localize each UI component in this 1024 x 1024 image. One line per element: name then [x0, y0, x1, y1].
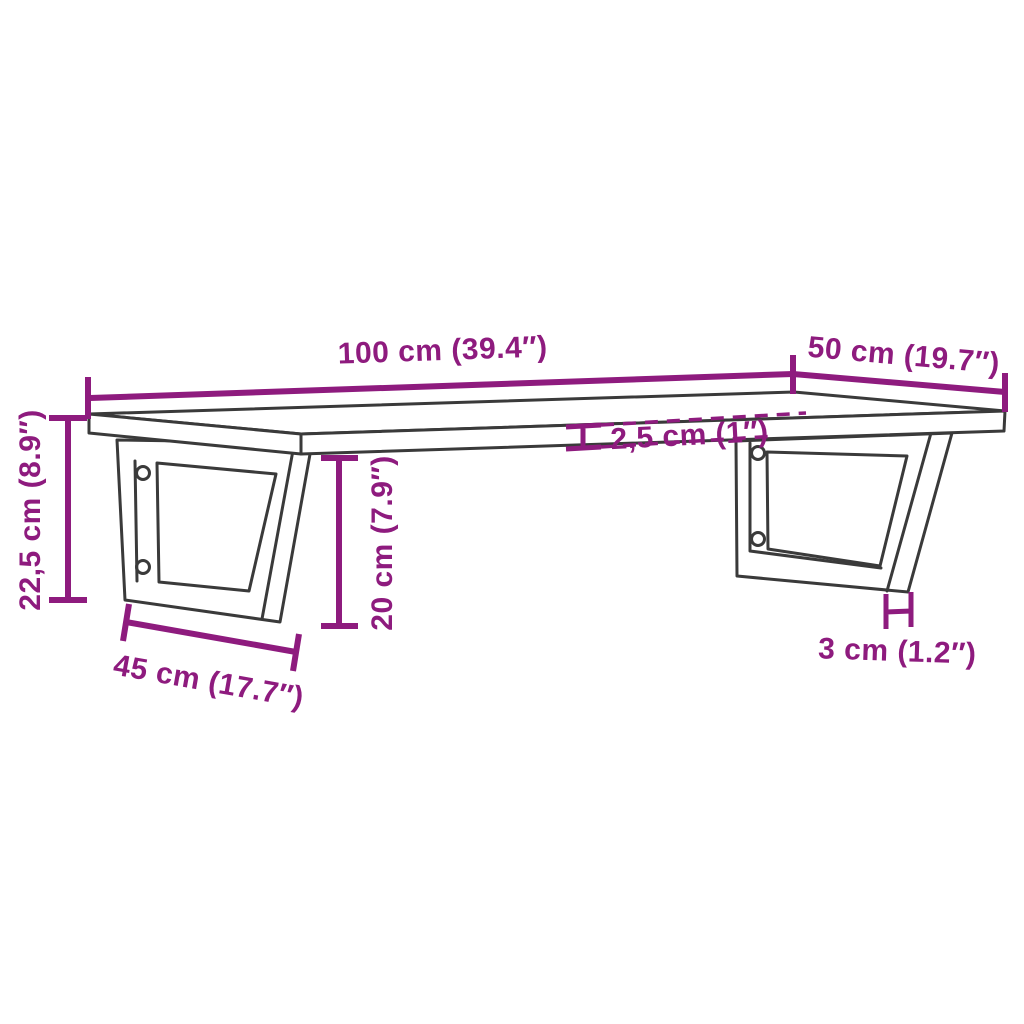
label-shelf-length: 100 cm (39.4″) [337, 330, 548, 370]
label-foot-width: 3 cm (1.2″) [818, 632, 977, 671]
dim-bracket-depth-cap-left [123, 604, 129, 641]
label-shelf-depth: 50 cm (19.7″) [806, 331, 1001, 381]
right-bracket [736, 433, 952, 592]
product-dimension-diagram: 100 cm (39.4″) 50 cm (19.7″) 2,5 cm (1″)… [0, 0, 1024, 1024]
label-bracket-depth: 45 cm (17.7″) [111, 649, 306, 715]
label-bracket-height: 20 cm (7.9″) [366, 455, 399, 630]
dim-bracket-depth-cap-right [293, 634, 299, 671]
left-bracket [117, 440, 312, 622]
dim-foot-width-symbol [886, 592, 911, 629]
shelf-dimension-drawing: 100 cm (39.4″) 50 cm (19.7″) 2,5 cm (1″)… [0, 0, 1024, 1024]
dim-bracket-depth-line [126, 622, 296, 652]
label-total-height: 22,5 cm (8.9″) [14, 409, 47, 610]
